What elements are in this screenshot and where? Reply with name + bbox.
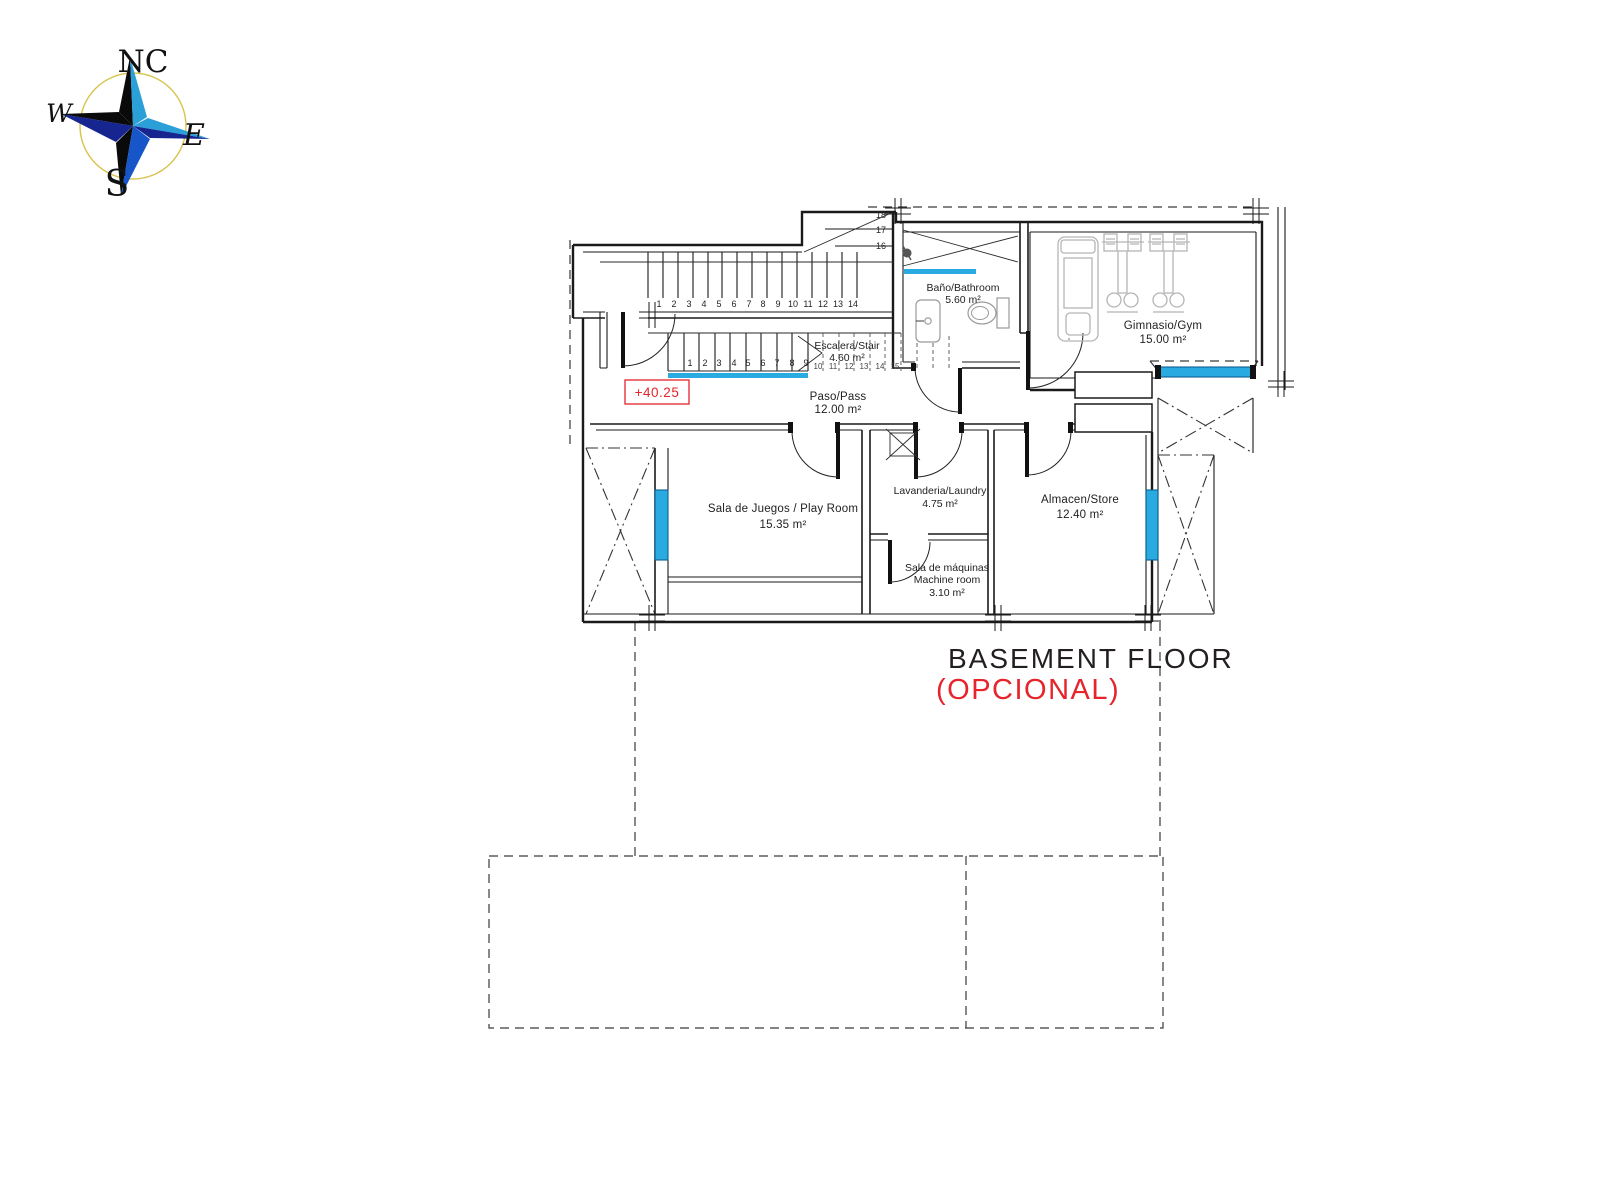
svg-text:6: 6 [731,299,736,309]
svg-text:18: 18 [876,210,886,220]
room-label-gym: Gimnasio/Gym 15.00 m² [1124,320,1202,346]
svg-text:12.00 m²: 12.00 m² [815,404,862,416]
room-label-stair: Escalera/Stair 4.60 m² [814,340,880,364]
svg-text:2: 2 [671,299,676,309]
svg-text:Almacen/Store: Almacen/Store [1041,494,1119,506]
shower-screen [904,269,976,274]
svg-text:12.40 m²: 12.40 m² [1057,509,1104,521]
svg-text:Sala de Juegos / Play Room: Sala de Juegos / Play Room [708,503,858,515]
svg-text:7: 7 [746,299,751,309]
stair-winder-numbers: 18 17 16 [876,210,886,251]
weight-machine-icon [1102,234,1144,312]
svg-text:4.60 m²: 4.60 m² [829,352,865,364]
svg-text:4.75 m²: 4.75 m² [922,498,958,510]
weight-machine-icon [1148,234,1190,312]
compass-east-label: E [182,118,205,153]
svg-text:Baño/Bathroom: Baño/Bathroom [927,282,1000,294]
svg-text:9: 9 [803,358,808,368]
svg-text:5: 5 [745,358,750,368]
gym-window [1158,367,1254,377]
svg-text:14: 14 [848,299,858,309]
level-marker: +40.25 [625,380,689,404]
compass-south-label: S [105,164,130,205]
svg-text:6: 6 [760,358,765,368]
svg-text:7: 7 [774,358,779,368]
svg-text:8: 8 [760,299,765,309]
svg-text:8: 8 [789,358,794,368]
svg-text:11: 11 [803,299,812,309]
svg-text:Sala de máquinas: Sala de máquinas [905,562,989,574]
svg-text:14: 14 [876,362,885,371]
floor-plan-canvas: NC W E S [0,0,1600,1187]
svg-text:2: 2 [702,358,707,368]
svg-text:Gimnasio/Gym: Gimnasio/Gym [1124,320,1202,332]
compass-west-label: W [46,99,74,128]
svg-text:5.60 m²: 5.60 m² [945,294,981,306]
svg-text:3: 3 [686,299,691,309]
stairs: 1 2 3 4 5 6 7 8 9 10 11 12 13 14 18 17 1… [600,210,949,371]
svg-text:4: 4 [701,299,706,309]
svg-text:17: 17 [876,225,886,235]
title-main: BASEMENT FLOOR [948,643,1234,674]
svg-text:1: 1 [687,358,692,368]
svg-text:15.35 m²: 15.35 m² [760,519,807,531]
shower-tray [903,230,1018,266]
room-label-hall: Paso/Pass 12.00 m² [810,391,867,416]
svg-text:Paso/Pass: Paso/Pass [810,391,867,403]
room-label-playroom: Sala de Juegos / Play Room 15.35 m² [708,503,858,531]
svg-text:1: 1 [656,299,661,309]
room-label-store: Almacen/Store 12.40 m² [1041,494,1119,521]
stair-lower-strip [668,373,808,378]
svg-text:12: 12 [818,299,828,309]
svg-text:Machine room: Machine room [914,574,981,586]
svg-text:5: 5 [716,299,721,309]
svg-text:10: 10 [814,362,823,371]
stair-upper-numbers: 1 2 3 4 5 6 7 8 9 10 11 12 13 14 [656,299,858,309]
room-labels: Baño/Bathroom 5.60 m² Gimnasio/Gym 15.00… [708,282,1202,599]
svg-text:16: 16 [876,241,886,251]
drawing-title: BASEMENT FLOOR (OPCIONAL) [936,643,1234,706]
playroom-window [655,490,668,560]
room-label-machine: Sala de máquinas Machine room 3.10 m² [905,562,989,599]
svg-text:Escalera/Stair: Escalera/Stair [814,340,880,352]
svg-text:9: 9 [775,299,780,309]
stair-lower-numbers: 1 2 3 4 5 6 7 8 9 10 11 12 13 14 15 [687,358,900,371]
svg-text:4: 4 [731,358,736,368]
svg-text:3: 3 [716,358,721,368]
terrace-outline [489,856,1163,1028]
svg-text:13: 13 [833,299,843,309]
svg-text:10: 10 [788,299,798,309]
store-window [1146,490,1158,560]
toilet-tank [997,298,1009,328]
svg-text:15: 15 [891,362,900,371]
compass-north-label: NC [118,44,169,80]
svg-text:+40.25: +40.25 [635,385,680,400]
treadmill-icon [1058,237,1098,341]
svg-text:15.00 m²: 15.00 m² [1140,334,1187,346]
floor-plan: 1 2 3 4 5 6 7 8 9 10 11 12 13 14 18 17 1… [489,198,1294,1028]
svg-text:Lavanderia/Laundry: Lavanderia/Laundry [894,485,988,497]
compass-rose: NC W E S [46,44,210,205]
svg-text:3.10 m²: 3.10 m² [929,587,965,599]
room-label-laundry: Lavanderia/Laundry 4.75 m² [894,485,988,510]
title-sub: (OPCIONAL) [936,674,1120,706]
